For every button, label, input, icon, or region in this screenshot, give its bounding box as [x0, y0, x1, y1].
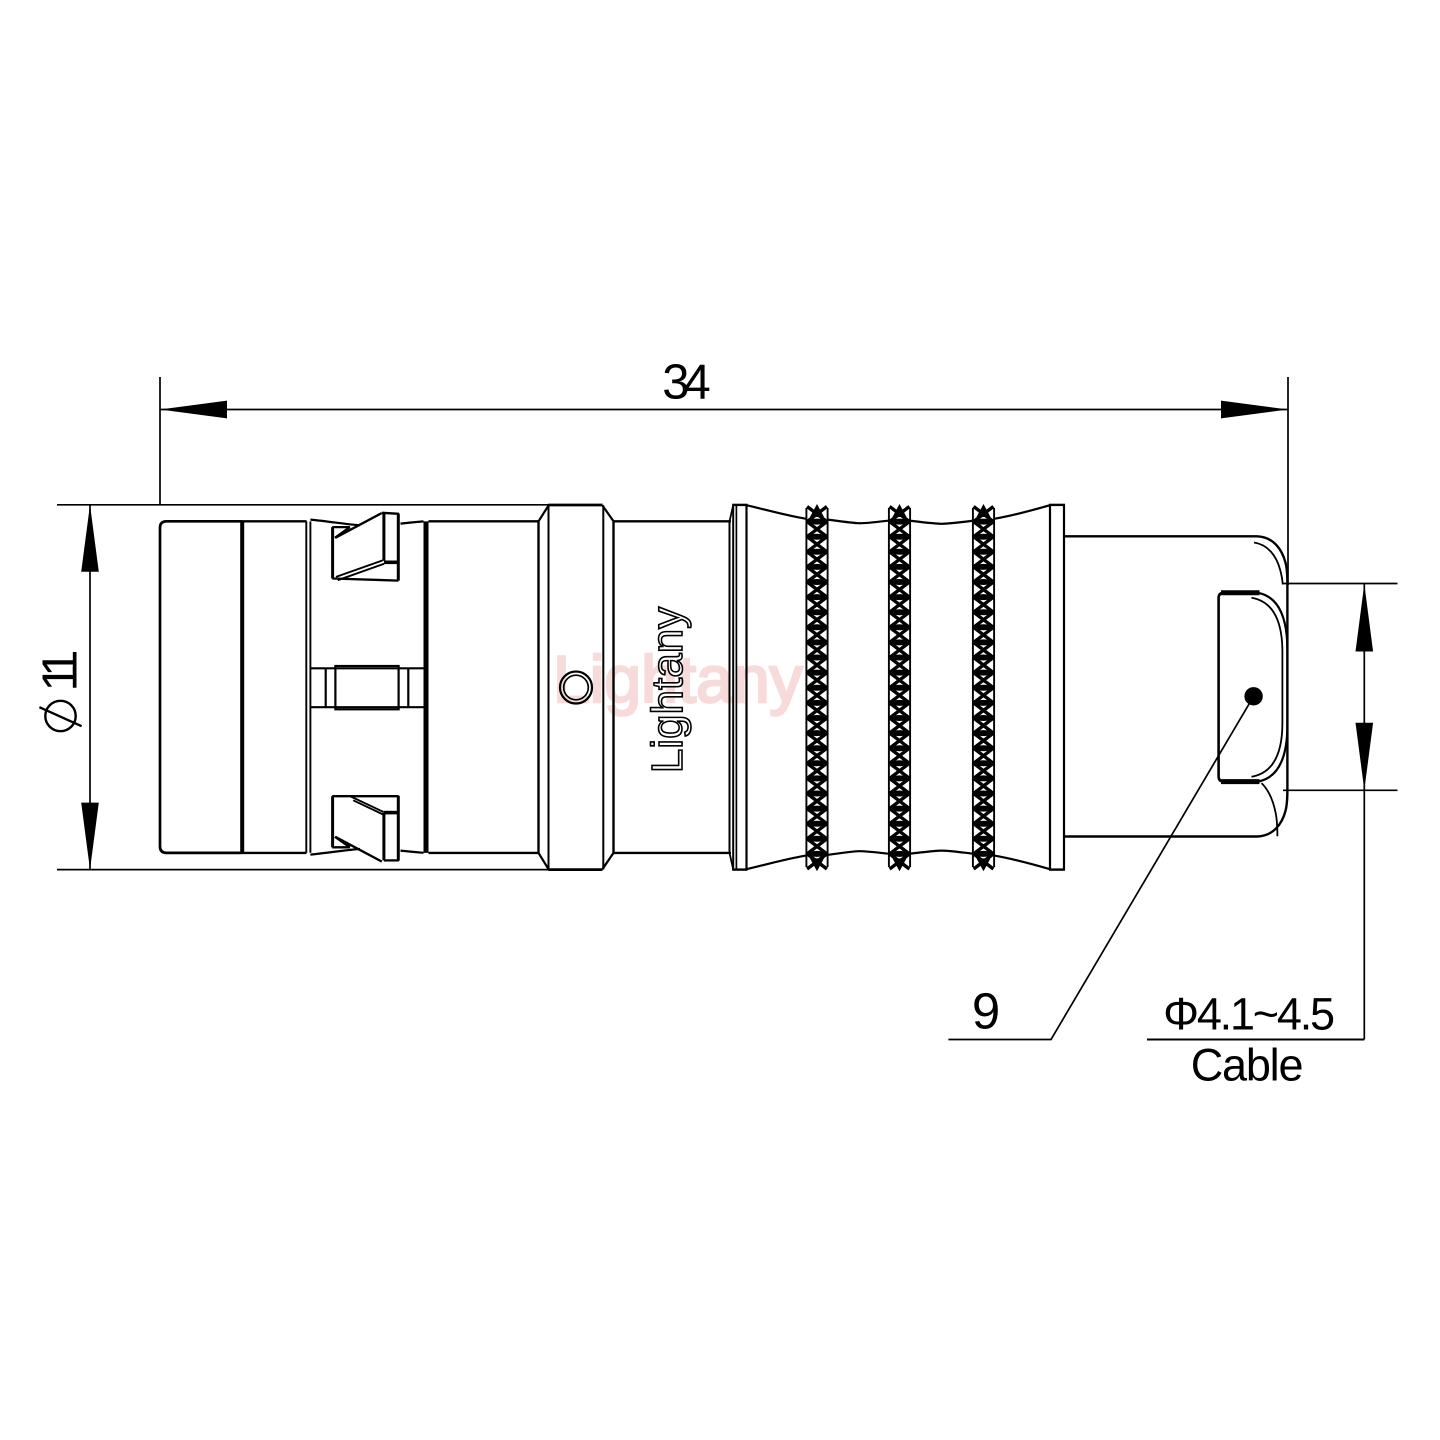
svg-text:Cable: Cable: [1191, 1040, 1303, 1091]
svg-text:34: 34: [662, 356, 709, 410]
svg-text:Φ4.1~4.5: Φ4.1~4.5: [1163, 989, 1334, 1040]
svg-text:Lightany: Lightany: [643, 607, 692, 773]
svg-text:9: 9: [972, 983, 1000, 1040]
